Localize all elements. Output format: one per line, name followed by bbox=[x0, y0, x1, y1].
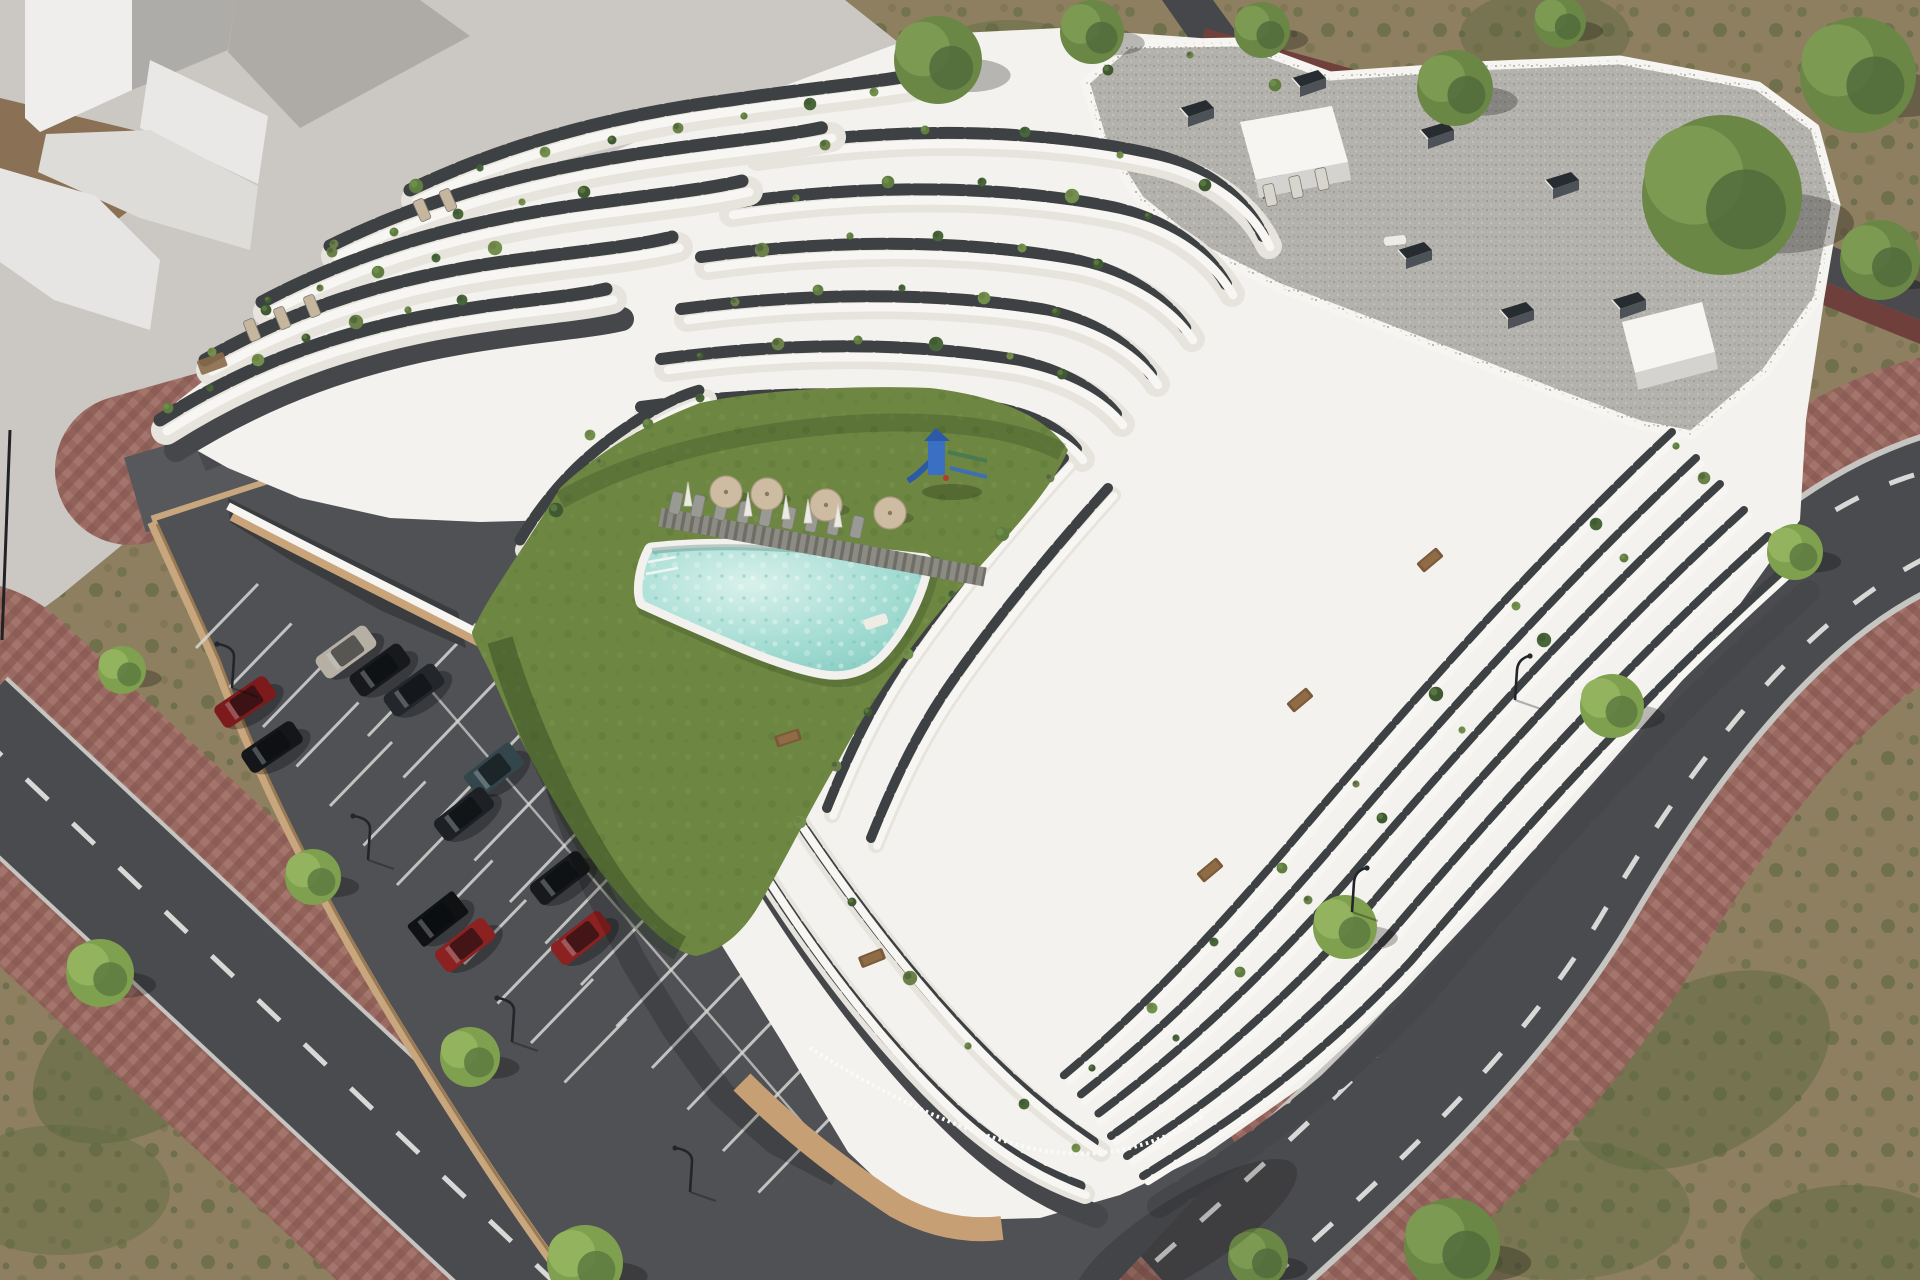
aerial-render-canvas bbox=[0, 0, 1920, 1280]
playground-shadow bbox=[922, 484, 982, 500]
aerial-render-stage bbox=[0, 0, 1920, 1280]
playground-detail bbox=[943, 475, 949, 481]
tree bbox=[1840, 220, 1920, 300]
playground-tower bbox=[928, 440, 945, 475]
